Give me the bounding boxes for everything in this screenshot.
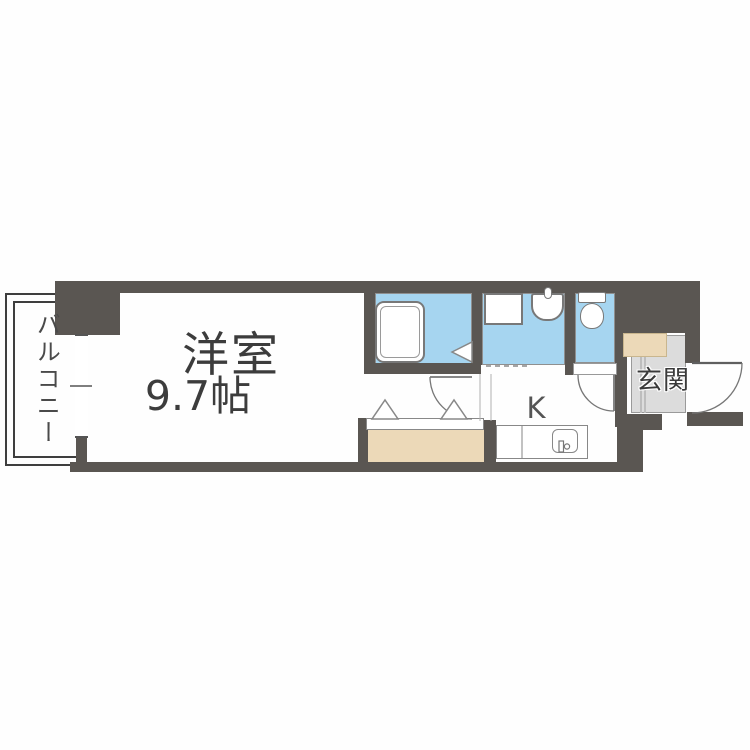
closet-door-fold-icon: [441, 400, 467, 419]
closet-floor: [366, 430, 484, 462]
wall-segment: [484, 420, 496, 472]
toilet-tank: [578, 292, 606, 303]
toilet-doorway: [573, 363, 617, 375]
bathtub-inner-rim: [380, 306, 420, 358]
kitchen-sink: [552, 429, 578, 453]
shoe-cabinet: [623, 333, 667, 357]
entrance-label: 玄関: [636, 368, 690, 395]
closet-folding-door-track: [366, 418, 484, 430]
wall-segment: [364, 363, 481, 374]
toilet-door-swing: [578, 375, 614, 411]
washing-machine-space: [484, 293, 523, 325]
wall-segment: [76, 293, 87, 335]
main-room-size-label: 9.7帖: [145, 375, 251, 418]
wall-segment: [627, 414, 662, 430]
window: [75, 334, 88, 438]
entrance-door-swing: [692, 363, 742, 413]
balcony-label: バルコニー: [33, 312, 58, 447]
toilet-bowl: [580, 303, 604, 329]
wall-segment: [472, 293, 482, 365]
closet-door-fold-icon: [372, 400, 398, 419]
wall-segment: [55, 281, 120, 335]
wall-segment: [617, 423, 643, 472]
wall-segment: [364, 293, 375, 374]
floor-plan: バルコニー 洋室 9.7帖 K 玄関: [0, 0, 750, 750]
wall-segment: [687, 412, 743, 426]
interior-door-swing: [430, 377, 472, 419]
wall-segment: [70, 462, 643, 472]
wall-segment: [615, 281, 700, 333]
kitchen-label: K: [526, 393, 545, 423]
wall-segment: [685, 333, 700, 363]
washbasin-tap: [544, 287, 552, 299]
